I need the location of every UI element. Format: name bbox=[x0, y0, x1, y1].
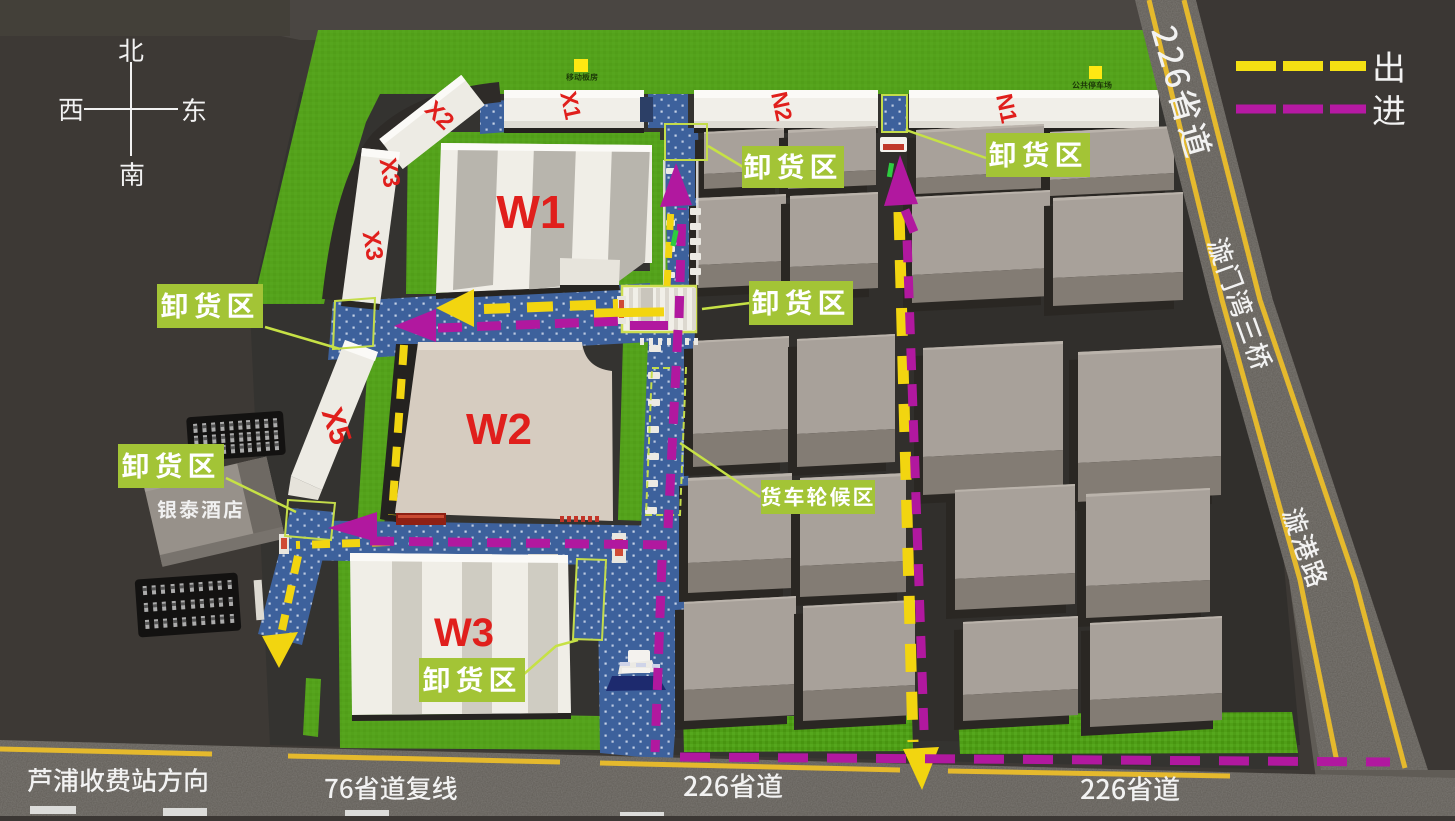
svg-text:W2: W2 bbox=[466, 405, 532, 454]
svg-text:X3: X3 bbox=[357, 229, 389, 263]
svg-text:W3: W3 bbox=[434, 611, 494, 655]
svg-text:X3: X3 bbox=[374, 156, 406, 190]
svg-text:W1: W1 bbox=[497, 186, 566, 238]
